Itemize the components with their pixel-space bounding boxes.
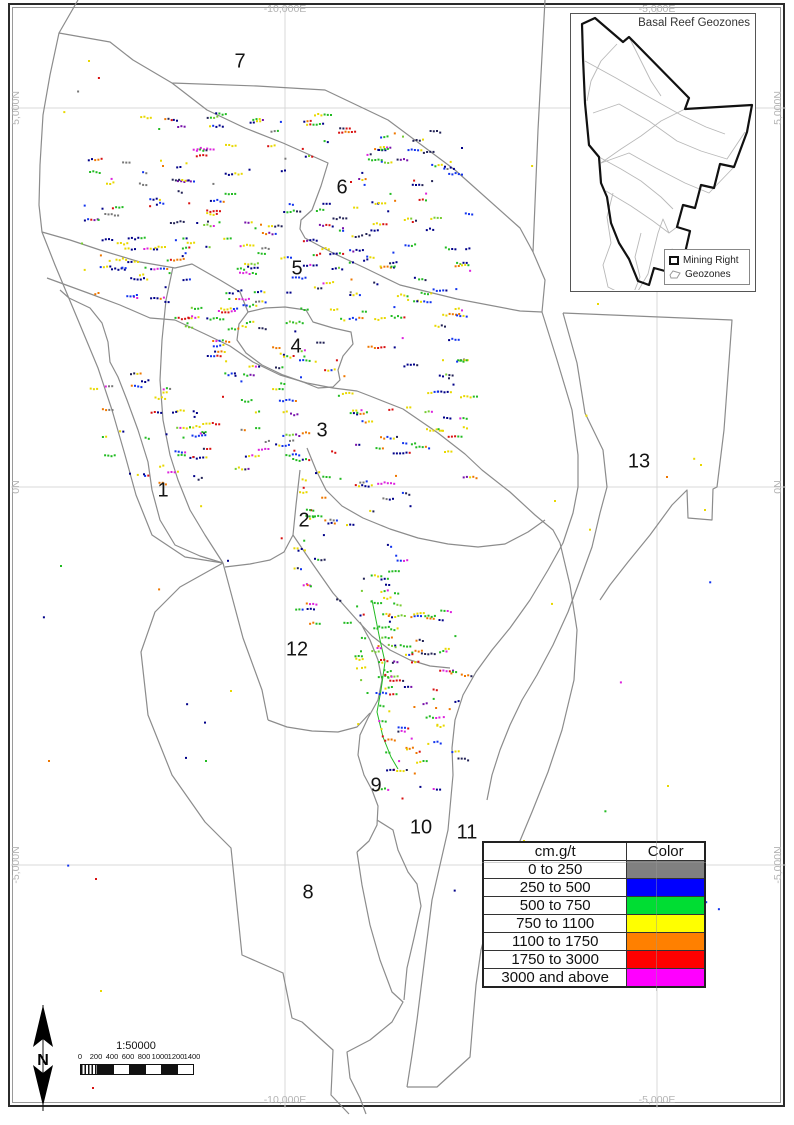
sample-point bbox=[160, 268, 162, 270]
sample-point bbox=[150, 268, 152, 270]
sample-point bbox=[362, 311, 364, 313]
sample-point bbox=[346, 128, 348, 130]
sample-point bbox=[243, 304, 245, 306]
sample-point bbox=[406, 646, 408, 648]
sample-point bbox=[222, 396, 224, 398]
sample-point bbox=[329, 203, 331, 205]
sample-point bbox=[374, 159, 376, 161]
sample-point bbox=[356, 605, 358, 607]
sample-point bbox=[390, 597, 392, 599]
sample-point bbox=[364, 637, 366, 639]
sample-point bbox=[367, 154, 369, 156]
sample-point bbox=[396, 693, 398, 695]
sample-point bbox=[435, 707, 437, 709]
sample-point bbox=[392, 409, 394, 411]
sample-point bbox=[397, 159, 399, 161]
sample-point bbox=[381, 662, 383, 664]
sample-point bbox=[299, 359, 301, 361]
sample-point bbox=[212, 422, 214, 424]
sample-point bbox=[206, 224, 208, 226]
sample-point bbox=[163, 268, 165, 270]
sample-point bbox=[167, 471, 169, 473]
sample-point bbox=[359, 294, 361, 296]
sample-point bbox=[385, 721, 387, 723]
sample-point bbox=[427, 293, 429, 295]
sample-point bbox=[114, 215, 116, 217]
sample-point bbox=[231, 310, 233, 312]
sample-point bbox=[421, 650, 423, 652]
sample-point bbox=[128, 247, 130, 249]
legend-row: 750 to 1100 bbox=[483, 915, 705, 933]
sample-point bbox=[131, 249, 133, 251]
sample-point bbox=[387, 739, 389, 741]
sample-point bbox=[275, 367, 277, 369]
sample-point bbox=[378, 651, 380, 653]
sample-point bbox=[156, 248, 158, 250]
sample-point bbox=[258, 252, 260, 254]
sample-point bbox=[604, 810, 606, 812]
sample-point bbox=[281, 366, 283, 368]
sample-point bbox=[124, 248, 126, 250]
sample-point bbox=[63, 111, 65, 113]
sample-point bbox=[450, 611, 452, 613]
sample-point bbox=[279, 347, 281, 349]
sample-point bbox=[104, 213, 106, 215]
sample-point bbox=[251, 399, 253, 401]
sample-point bbox=[145, 437, 147, 439]
sample-point bbox=[207, 355, 209, 357]
sample-point bbox=[238, 467, 240, 469]
sample-point bbox=[119, 259, 121, 261]
sample-point bbox=[363, 413, 365, 415]
sample-point bbox=[128, 237, 130, 239]
sample-point bbox=[429, 430, 431, 432]
sample-point bbox=[416, 139, 418, 141]
sample-point bbox=[234, 193, 236, 195]
sample-point bbox=[278, 445, 280, 447]
sample-point bbox=[388, 644, 390, 646]
sample-point bbox=[256, 120, 258, 122]
sample-point bbox=[452, 313, 454, 315]
sample-point bbox=[303, 487, 305, 489]
sample-point bbox=[406, 452, 408, 454]
sample-point bbox=[470, 675, 472, 677]
sample-point bbox=[309, 360, 311, 362]
sample-point bbox=[183, 221, 185, 223]
zone-boundary bbox=[533, 0, 545, 252]
sample-point bbox=[433, 689, 435, 691]
legend-header-color: Color bbox=[627, 842, 705, 861]
sample-point bbox=[448, 436, 450, 438]
sample-point bbox=[166, 268, 168, 270]
sample-point bbox=[461, 147, 463, 149]
sample-point bbox=[126, 295, 128, 297]
sample-point bbox=[149, 205, 151, 207]
sample-point bbox=[417, 615, 419, 617]
sample-point bbox=[384, 740, 386, 742]
sample-point bbox=[438, 717, 440, 719]
inset-geozone-line bbox=[593, 104, 745, 159]
sample-point bbox=[300, 308, 302, 310]
sample-point bbox=[379, 693, 381, 695]
sample-point bbox=[334, 523, 336, 525]
zone-label-11: 11 bbox=[457, 822, 478, 845]
sample-point bbox=[102, 436, 104, 438]
sample-point bbox=[377, 229, 379, 231]
sample-point bbox=[382, 613, 384, 615]
sample-point bbox=[377, 628, 379, 630]
sample-point bbox=[102, 208, 104, 210]
sample-point bbox=[153, 297, 155, 299]
sample-point bbox=[371, 421, 373, 423]
sample-point bbox=[414, 243, 416, 245]
sample-point bbox=[355, 658, 357, 660]
sample-point bbox=[137, 386, 139, 388]
sample-point bbox=[400, 317, 402, 319]
sample-point bbox=[222, 126, 224, 128]
sample-point bbox=[367, 692, 369, 694]
sample-point bbox=[390, 546, 392, 548]
sample-point bbox=[159, 199, 161, 201]
sample-point bbox=[231, 193, 233, 195]
sample-point bbox=[131, 385, 133, 387]
sample-point bbox=[186, 237, 188, 239]
sample-point bbox=[368, 158, 370, 160]
sample-point bbox=[213, 210, 215, 212]
zone-boundary bbox=[59, 33, 533, 252]
sample-point bbox=[442, 650, 444, 652]
sample-point bbox=[454, 435, 456, 437]
sample-point bbox=[215, 112, 217, 114]
sample-point bbox=[255, 455, 257, 457]
sample-point bbox=[404, 727, 406, 729]
sample-point bbox=[365, 233, 367, 235]
zone-boundary bbox=[268, 713, 370, 732]
sample-point bbox=[351, 279, 353, 281]
sample-point bbox=[305, 458, 307, 460]
sample-point bbox=[456, 314, 458, 316]
sample-point bbox=[213, 317, 215, 319]
sample-point bbox=[380, 575, 382, 577]
sample-point bbox=[466, 316, 468, 318]
sample-point bbox=[353, 207, 355, 209]
sample-point bbox=[342, 230, 344, 232]
sample-point bbox=[242, 325, 244, 327]
sample-point bbox=[244, 429, 246, 431]
sample-point bbox=[426, 617, 428, 619]
sample-point bbox=[358, 178, 360, 180]
sample-point bbox=[285, 399, 287, 401]
sample-point bbox=[394, 266, 396, 268]
sample-point bbox=[426, 229, 428, 231]
sample-point bbox=[425, 193, 427, 195]
sample-point bbox=[458, 173, 460, 175]
sample-point bbox=[386, 498, 388, 500]
sample-point bbox=[417, 661, 419, 663]
sample-point bbox=[150, 297, 152, 299]
sample-point bbox=[414, 149, 416, 151]
sample-point bbox=[308, 432, 310, 434]
sample-point bbox=[161, 246, 163, 248]
sample-point bbox=[163, 297, 165, 299]
sample-point bbox=[155, 397, 157, 399]
sample-point bbox=[302, 459, 304, 461]
sample-point bbox=[391, 637, 393, 639]
sample-point bbox=[164, 118, 166, 120]
sample-point bbox=[292, 440, 294, 442]
sample-point bbox=[413, 364, 415, 366]
sample-point bbox=[400, 604, 402, 606]
sample-point bbox=[286, 411, 288, 413]
sample-point bbox=[597, 303, 599, 305]
sample-point bbox=[361, 637, 363, 639]
sample-point bbox=[554, 500, 556, 502]
sample-point bbox=[464, 758, 466, 760]
sample-point bbox=[283, 383, 285, 385]
sample-point bbox=[125, 162, 127, 164]
sample-point bbox=[141, 380, 143, 382]
sample-point bbox=[395, 570, 397, 572]
sample-point bbox=[242, 298, 244, 300]
sample-point bbox=[388, 637, 390, 639]
sample-point bbox=[172, 412, 174, 414]
sample-point bbox=[289, 321, 291, 323]
sample-point bbox=[241, 429, 243, 431]
sample-point bbox=[259, 120, 261, 122]
sample-point bbox=[349, 294, 351, 296]
sample-point bbox=[450, 161, 452, 163]
sample-point bbox=[402, 136, 404, 138]
sample-point bbox=[667, 785, 669, 787]
sample-point bbox=[396, 604, 398, 606]
sample-point bbox=[237, 268, 239, 270]
sample-point bbox=[439, 132, 441, 134]
sample-point bbox=[387, 162, 389, 164]
sample-point bbox=[251, 454, 253, 456]
sample-point bbox=[469, 476, 471, 478]
sample-point bbox=[153, 268, 155, 270]
sample-point bbox=[336, 598, 338, 600]
sample-point bbox=[412, 140, 414, 142]
sample-point bbox=[334, 368, 336, 370]
sample-point bbox=[365, 311, 367, 313]
sample-point bbox=[423, 300, 425, 302]
sample-point bbox=[248, 222, 250, 224]
sample-point bbox=[369, 234, 371, 236]
sample-point bbox=[426, 428, 428, 430]
sample-point bbox=[90, 219, 92, 221]
sample-point bbox=[238, 298, 240, 300]
sample-point bbox=[147, 248, 149, 250]
sample-point bbox=[387, 578, 389, 580]
sample-point bbox=[81, 243, 83, 245]
sample-point bbox=[394, 317, 396, 319]
sample-point bbox=[424, 615, 426, 617]
sample-point bbox=[423, 760, 425, 762]
sample-point bbox=[383, 146, 385, 148]
sample-point bbox=[315, 604, 317, 606]
sample-point bbox=[249, 244, 251, 246]
sample-point bbox=[374, 347, 376, 349]
sample-point bbox=[330, 519, 332, 521]
sample-point bbox=[404, 731, 406, 733]
sample-point bbox=[191, 327, 193, 329]
sample-point bbox=[442, 359, 444, 361]
sample-point bbox=[137, 237, 139, 239]
sample-point bbox=[284, 257, 286, 259]
legend-header-row: cm.g/t Color bbox=[483, 842, 705, 861]
sample-point bbox=[216, 213, 218, 215]
sample-point bbox=[444, 326, 446, 328]
sample-point bbox=[356, 207, 358, 209]
sample-point bbox=[403, 365, 405, 367]
sample-point bbox=[252, 304, 254, 306]
sample-point bbox=[381, 627, 383, 629]
sample-point bbox=[463, 262, 465, 264]
sample-point bbox=[456, 361, 458, 363]
sample-point bbox=[175, 450, 177, 452]
sample-point bbox=[272, 346, 274, 348]
sample-point bbox=[286, 322, 288, 324]
sample-point bbox=[433, 698, 435, 700]
sample-point bbox=[455, 265, 457, 267]
sample-point bbox=[212, 183, 214, 185]
zone-label-12: 12 bbox=[286, 639, 308, 662]
sample-point bbox=[100, 990, 102, 992]
sample-point bbox=[376, 692, 378, 694]
sample-point bbox=[94, 219, 96, 221]
sample-point bbox=[348, 131, 350, 133]
sample-point bbox=[422, 199, 424, 201]
sample-point bbox=[307, 309, 309, 311]
sample-point bbox=[134, 261, 136, 263]
sample-point bbox=[134, 385, 136, 387]
sample-point bbox=[101, 158, 103, 160]
sample-point bbox=[388, 409, 390, 411]
sample-point bbox=[416, 364, 418, 366]
sample-point bbox=[345, 392, 347, 394]
sample-point bbox=[364, 485, 366, 487]
sample-point bbox=[296, 413, 298, 415]
sample-point bbox=[349, 318, 351, 320]
sample-point bbox=[375, 651, 377, 653]
sample-point bbox=[162, 465, 164, 467]
sample-point bbox=[186, 279, 188, 281]
sample-point bbox=[396, 452, 398, 454]
sample-point bbox=[106, 183, 108, 185]
zone-label-10: 10 bbox=[410, 817, 432, 840]
sample-point bbox=[271, 131, 273, 133]
sample-point bbox=[141, 237, 143, 239]
sample-point bbox=[403, 316, 405, 318]
sample-point bbox=[222, 114, 224, 116]
sample-point bbox=[265, 441, 267, 443]
sample-point bbox=[388, 752, 390, 754]
sample-point bbox=[387, 677, 389, 679]
sample-point bbox=[257, 262, 259, 264]
sample-point bbox=[400, 644, 402, 646]
sample-point bbox=[162, 203, 164, 205]
sample-point bbox=[401, 614, 403, 616]
sample-point bbox=[444, 166, 446, 168]
sample-point bbox=[189, 426, 191, 428]
sample-point bbox=[433, 788, 435, 790]
sample-point bbox=[384, 148, 386, 150]
sample-point bbox=[171, 471, 173, 473]
sample-point bbox=[366, 480, 368, 482]
sample-point bbox=[449, 313, 451, 315]
sample-point bbox=[433, 151, 435, 153]
sample-point bbox=[381, 728, 383, 730]
sample-point bbox=[286, 211, 288, 213]
sample-point bbox=[250, 122, 252, 124]
sample-point bbox=[184, 451, 186, 453]
sample-point bbox=[389, 614, 391, 616]
sample-point bbox=[230, 237, 232, 239]
sample-point bbox=[380, 647, 382, 649]
sample-point bbox=[352, 261, 354, 263]
sample-point bbox=[244, 468, 246, 470]
sample-point bbox=[327, 523, 329, 525]
sample-point bbox=[105, 409, 107, 411]
sample-point bbox=[329, 476, 331, 478]
sample-point bbox=[455, 751, 457, 753]
sample-point bbox=[413, 300, 415, 302]
sample-point bbox=[370, 229, 372, 231]
sample-point bbox=[139, 274, 141, 276]
sample-point bbox=[463, 417, 465, 419]
sample-point bbox=[117, 242, 119, 244]
sample-point bbox=[258, 366, 260, 368]
sample-point bbox=[158, 246, 160, 248]
sample-point bbox=[95, 878, 97, 880]
sample-point bbox=[448, 339, 450, 341]
sample-point bbox=[261, 253, 263, 255]
sample-point bbox=[409, 452, 411, 454]
sample-point bbox=[181, 192, 183, 194]
sample-point bbox=[88, 60, 90, 62]
sample-point bbox=[176, 259, 178, 261]
sample-point bbox=[350, 181, 352, 183]
sample-point bbox=[466, 262, 468, 264]
sample-point bbox=[391, 676, 393, 678]
sample-point bbox=[381, 159, 383, 161]
sample-point bbox=[261, 449, 263, 451]
sample-point bbox=[299, 321, 301, 323]
sample-point bbox=[238, 174, 240, 176]
sample-point bbox=[384, 578, 386, 580]
sample-point bbox=[342, 128, 344, 130]
sample-point bbox=[228, 193, 230, 195]
sample-point bbox=[359, 250, 361, 252]
sample-point bbox=[329, 282, 331, 284]
sample-point bbox=[389, 147, 391, 149]
sample-point bbox=[176, 120, 178, 122]
sample-point bbox=[380, 436, 382, 438]
sample-point bbox=[442, 670, 444, 672]
sample-point bbox=[170, 222, 172, 224]
sample-point bbox=[283, 411, 285, 413]
sample-point bbox=[377, 483, 379, 485]
sample-point bbox=[376, 447, 378, 449]
sample-point bbox=[419, 446, 421, 448]
sample-point bbox=[215, 126, 217, 128]
sample-point bbox=[210, 225, 212, 227]
zone-label-2: 2 bbox=[298, 510, 309, 533]
sample-point bbox=[192, 435, 194, 437]
sample-point bbox=[418, 651, 420, 653]
sample-point bbox=[388, 710, 390, 712]
